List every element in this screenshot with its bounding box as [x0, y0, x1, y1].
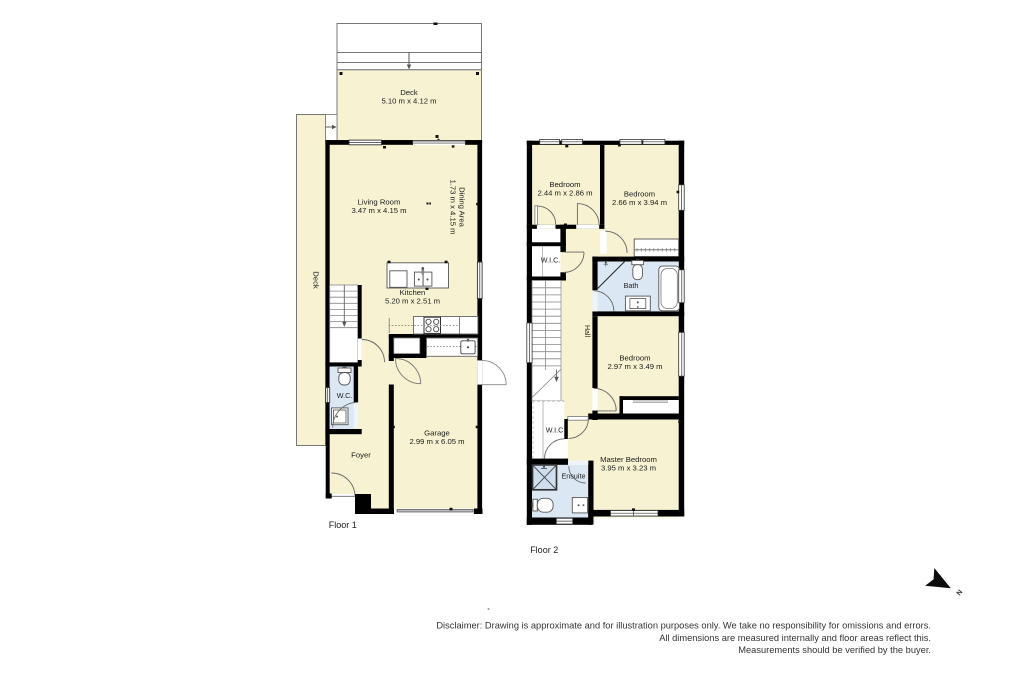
svg-text:3.95 m x 3.23 m: 3.95 m x 3.23 m: [601, 464, 656, 473]
svg-text:Deck: Deck: [312, 271, 321, 289]
svg-text:Floor 2: Floor 2: [530, 545, 558, 555]
svg-text:2.99 m x 6.05 m: 2.99 m x 6.05 m: [409, 437, 464, 446]
svg-text:Bath: Bath: [624, 281, 639, 290]
svg-text:5.20 m x 2.51 m: 5.20 m x 2.51 m: [385, 297, 440, 306]
svg-text:Disclaimer: Drawing is approxi: Disclaimer: Drawing is approximate and f…: [436, 621, 931, 631]
svg-text:Ensuite: Ensuite: [562, 472, 586, 481]
svg-text:2.97 m x 3.49 m: 2.97 m x 3.49 m: [607, 362, 662, 371]
svg-text:All dimensions are measured in: All dimensions are measured internally a…: [659, 633, 931, 643]
svg-text:2.66 m x 3.94 m: 2.66 m x 3.94 m: [612, 198, 667, 207]
svg-text:W.I.C: W.I.C: [546, 426, 564, 435]
svg-text:W.I.C.: W.I.C.: [541, 256, 561, 265]
svg-text:Hall: Hall: [583, 325, 590, 338]
svg-text:3.47 m x 4.15 m: 3.47 m x 4.15 m: [351, 206, 406, 215]
svg-text:Foyer: Foyer: [351, 451, 371, 460]
svg-text:1.73 m x 4.15 m: 1.73 m x 4.15 m: [449, 179, 458, 234]
svg-text:Floor 1: Floor 1: [329, 520, 357, 530]
svg-text:Measurements should be verifie: Measurements should be verified by the b…: [738, 645, 931, 655]
svg-text:Dining Area: Dining Area: [458, 187, 467, 227]
svg-text:W.C.: W.C.: [337, 391, 353, 400]
svg-text:5.10 m x 4.12 m: 5.10 m x 4.12 m: [381, 97, 436, 106]
svg-text:2.44 m x 2.86 m: 2.44 m x 2.86 m: [537, 189, 592, 198]
